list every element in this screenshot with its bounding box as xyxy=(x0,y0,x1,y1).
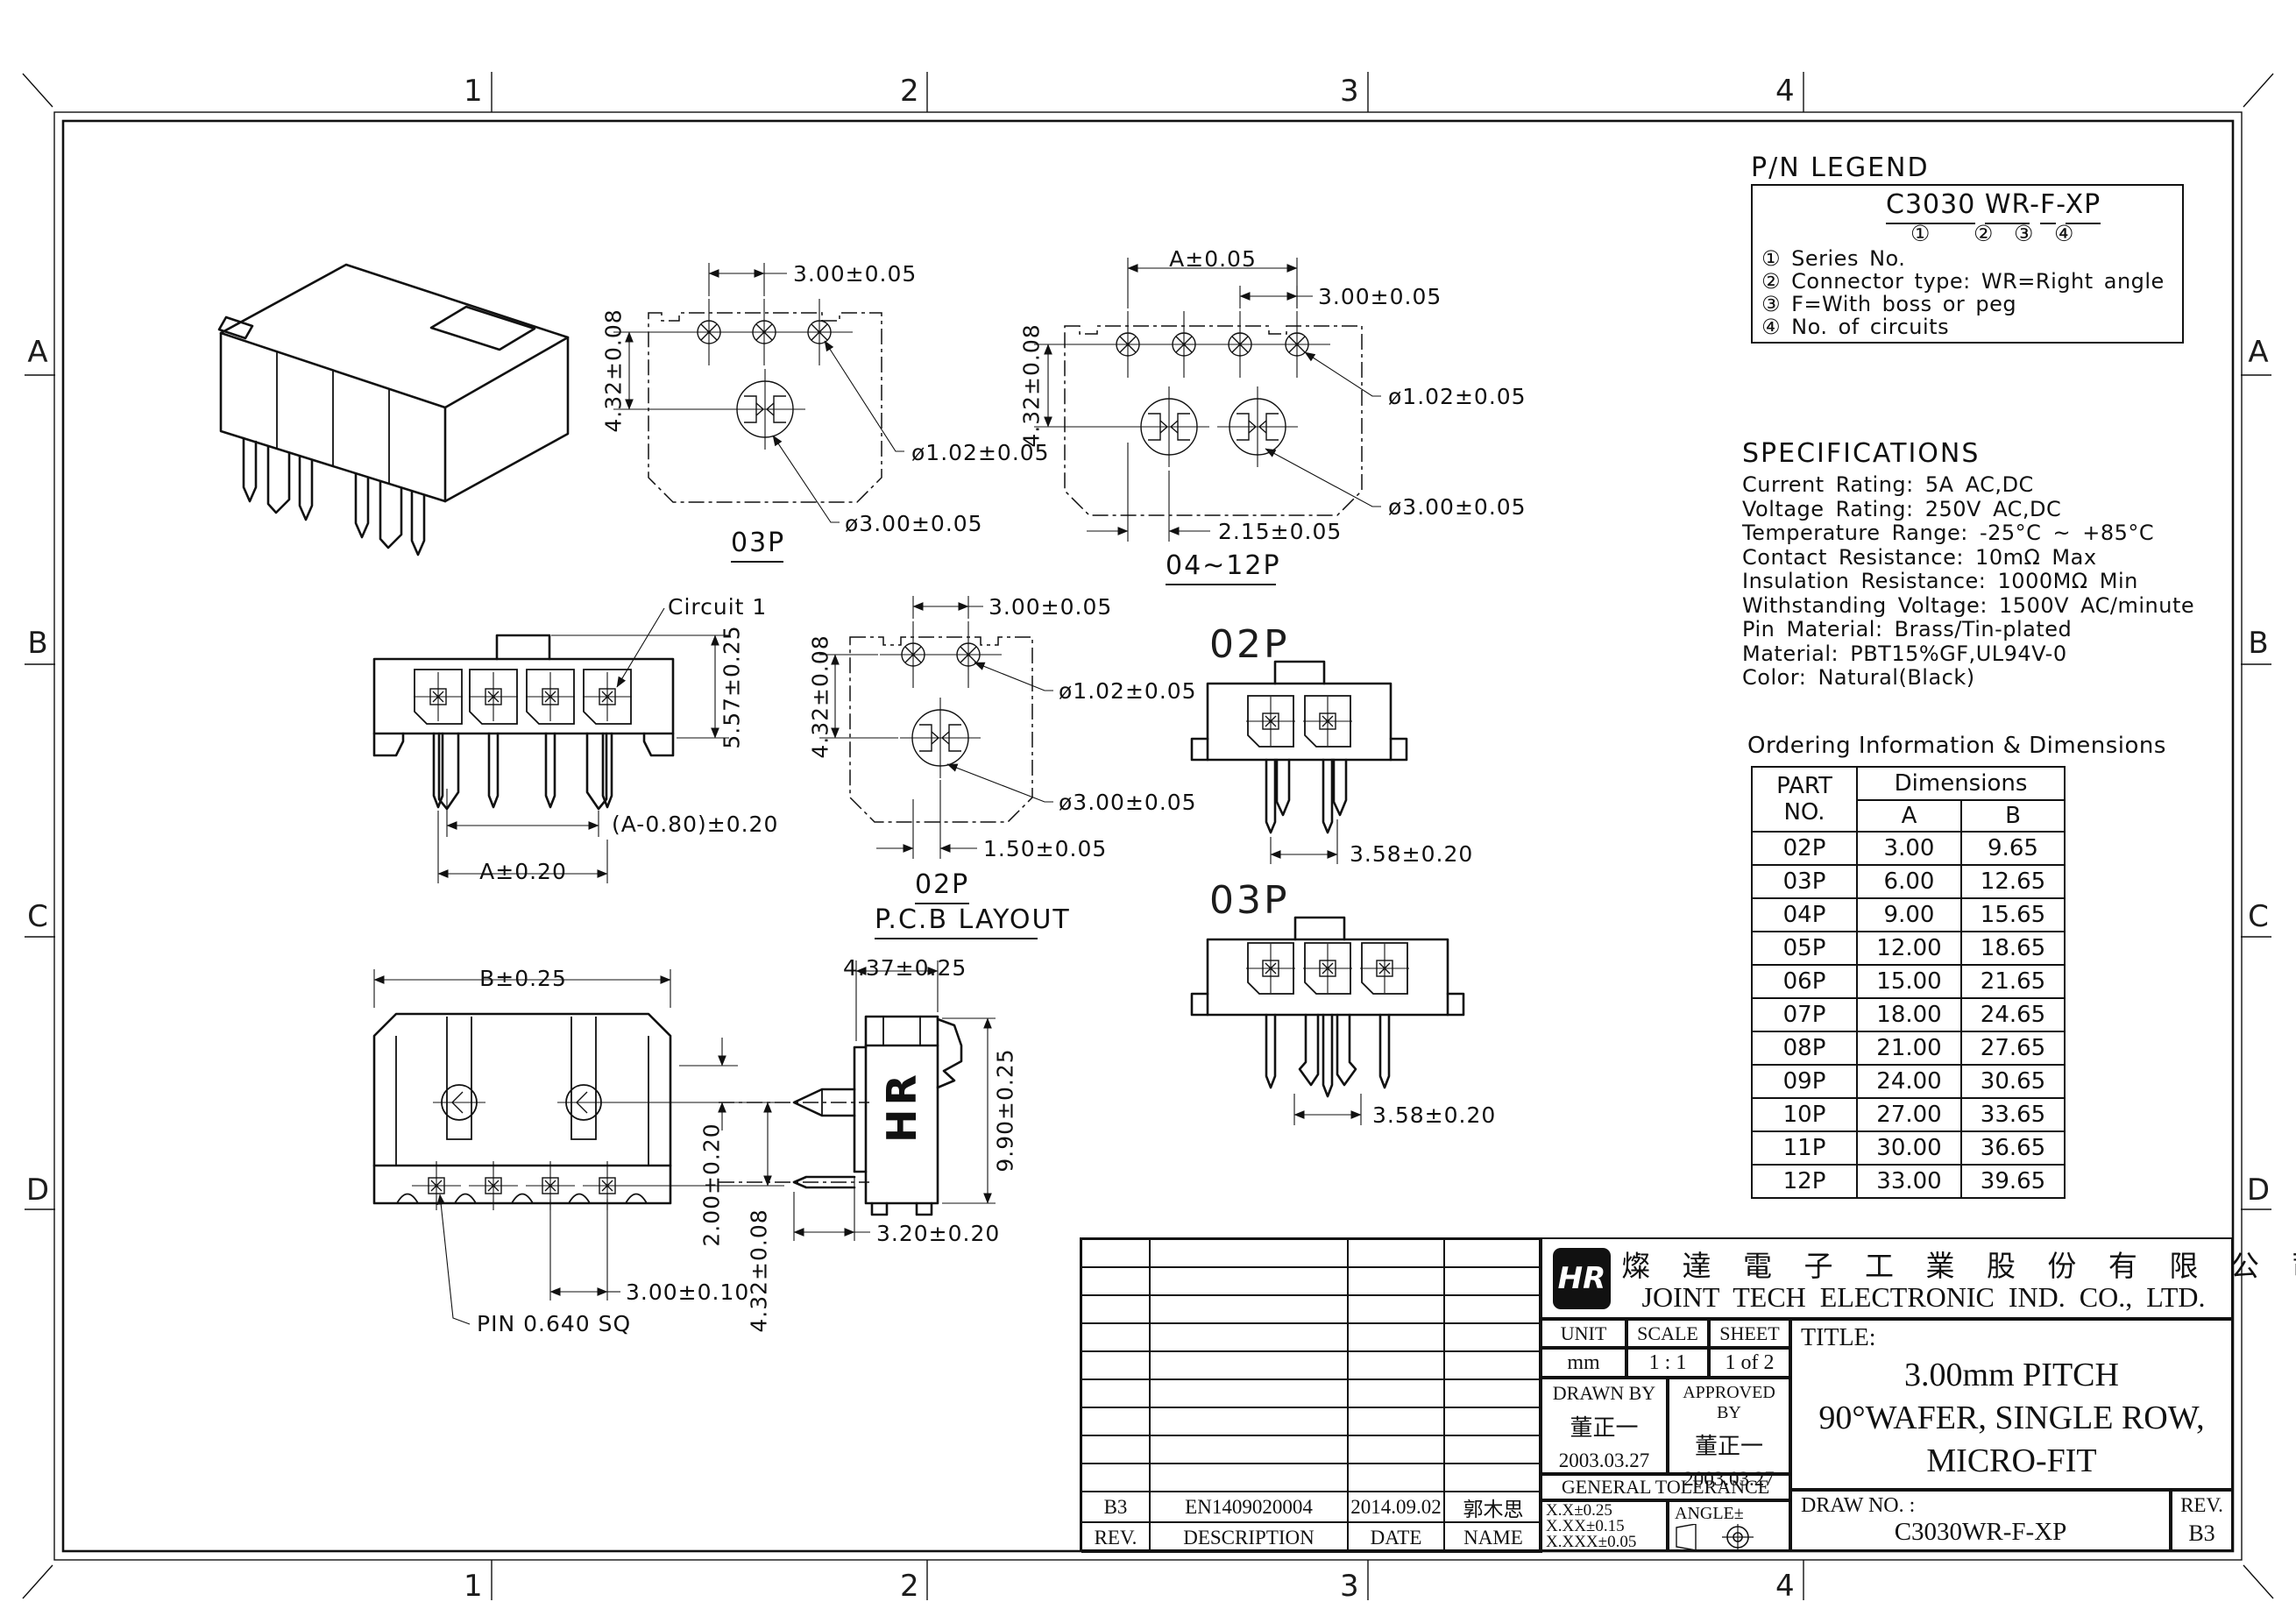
dim-0412-pitch: 3.00±0.05 xyxy=(1318,284,1442,309)
draw-no-box: DRAW NO. : C3030WR-F-XP xyxy=(1790,1490,2171,1551)
dim-03p-pitch: 3.00±0.05 xyxy=(793,261,917,287)
zone-col-4-top: 4 xyxy=(1775,74,1793,109)
approved-by-box: APPROVED BY 董正一 2003.03.27 xyxy=(1668,1378,1790,1474)
draw-no-label: DRAW NO. : xyxy=(1801,1494,2169,1518)
pn-mark-3: ③ xyxy=(2014,221,2033,246)
dim-side-depth: 4.37±0.25 xyxy=(843,955,950,981)
zone-col-2-top: 2 xyxy=(900,74,918,109)
dim-c03p: 3.58±0.20 xyxy=(1372,1102,1496,1128)
dim-side-height: 9.90±0.25 xyxy=(993,1048,1018,1172)
zone-col-2-bottom: 2 xyxy=(900,1569,918,1604)
connector-03p xyxy=(1192,918,1463,1125)
pn-series: C3030 xyxy=(1886,189,1975,224)
zone-col-1-top: 1 xyxy=(464,74,481,109)
approved-by-name: 董正一 xyxy=(1669,1428,1789,1461)
connector-02p xyxy=(1192,662,1407,864)
dim-bottom-pitch: 3.00±0.10 xyxy=(626,1279,749,1305)
dim-front-span: A±0.20 xyxy=(470,859,577,884)
zone-row-a-right: A xyxy=(2243,335,2273,370)
ordering-table: PART NO. Dimensions A B 02P3.009.65 03P6… xyxy=(1751,766,2066,1199)
legend-item: ② Connector type: WR=Right angle xyxy=(1761,270,2165,293)
col-b: B xyxy=(1961,800,2065,832)
drawn-by-name: 董正一 xyxy=(1542,1410,1666,1442)
spec-line: Contact Resistance: 10mΩ Max xyxy=(1742,546,2194,571)
pn-number: C3030 WR-F-XP xyxy=(1886,189,2101,220)
legend-item: ① Series No. xyxy=(1761,247,2165,270)
dim-03p-row: 4.32±0.08 xyxy=(601,308,627,432)
sheet-value: 1 of 2 xyxy=(1709,1348,1790,1378)
zone-row-d-left: D xyxy=(23,1173,53,1208)
dim-02p-hole: ø3.00±0.05 xyxy=(1059,790,1197,815)
approved-by-label: APPROVED BY xyxy=(1669,1383,1789,1423)
drawing-sheet: 1 2 3 4 1 2 3 4 A B C D A B C D 3.00±0.0… xyxy=(0,0,2296,1623)
specs-title: SPECIFICATIONS xyxy=(1742,438,1980,469)
dim-0412-hole: ø3.00±0.05 xyxy=(1388,494,1527,520)
zone-row-a-left: A xyxy=(23,335,53,370)
revision-table: B3 EN1409020004 2014.09.02 郭木思 REV. DESC… xyxy=(1080,1237,1541,1551)
table-row: 02P3.009.65 xyxy=(1752,832,2065,865)
table-row: 12P33.0039.65 xyxy=(1752,1165,2065,1198)
rev-label: REV. xyxy=(2172,1494,2231,1517)
table-row: 06P15.0021.65 xyxy=(1752,965,2065,998)
table-row: 07P18.0024.65 xyxy=(1752,998,2065,1031)
dim-c02p: 3.58±0.20 xyxy=(1350,841,1473,867)
callout-circuit-1: Circuit 1 xyxy=(668,594,767,620)
company-name-cjk: 燦 達 電 子 工 業 股 份 有 限 公 司 xyxy=(1621,1243,2226,1285)
label-02p-footprint: 02P xyxy=(915,869,969,904)
rev-header-date: DATE xyxy=(1348,1522,1444,1553)
table-row: 09P24.0030.65 xyxy=(1752,1065,2065,1098)
label-connector-03p: 03P xyxy=(1209,878,1290,923)
angle-tolerance-box: ANGLE± xyxy=(1668,1500,1790,1551)
col-dimensions: Dimensions xyxy=(1857,767,2065,800)
projection-symbol-icon xyxy=(1669,1524,1785,1550)
spec-line: Withstanding Voltage: 1500V AC/minute xyxy=(1742,594,2194,619)
spec-line: Insulation Resistance: 1000MΩ Min xyxy=(1742,570,2194,594)
pn-mark-1: ① xyxy=(1910,221,1930,246)
spec-line: Voltage Rating: 250V AC,DC xyxy=(1742,498,2194,522)
table-row: 04P9.0015.65 xyxy=(1752,898,2065,932)
drawing-title: 3.00mm PITCH 90°WAFER, SINGLE ROW, MICRO… xyxy=(1792,1354,2231,1483)
spec-line: Color: Natural(Black) xyxy=(1742,666,2194,691)
rev-header-description: DESCRIPTION xyxy=(1150,1522,1348,1553)
rev-entry-date: 2014.09.02 xyxy=(1348,1492,1444,1522)
unit-label: UNIT xyxy=(1541,1319,1626,1348)
dim-front-height: 5.57±0.25 xyxy=(719,625,745,748)
spec-line: Material: PBT15%GF,UL94V-0 xyxy=(1742,642,2194,667)
dim-02p-offset: 1.50±0.05 xyxy=(983,836,1107,861)
company-logo: HR xyxy=(1553,1248,1611,1309)
dim-02p-row: 4.32±0.08 xyxy=(808,634,833,758)
label-connector-02p: 02P xyxy=(1209,622,1290,667)
zone-row-c-right: C xyxy=(2243,899,2273,934)
general-tolerance-label: GENERAL TOLERANCE xyxy=(1541,1474,1790,1500)
zone-row-b-left: B xyxy=(23,626,53,661)
rev-header-rev: REV. xyxy=(1081,1522,1150,1553)
rev-entry-description: EN1409020004 xyxy=(1150,1492,1348,1522)
angle-label: ANGLE± xyxy=(1675,1504,1789,1524)
company-name-en: JOINT TECH ELECTRONIC IND. CO., LTD. xyxy=(1621,1281,2226,1314)
col-a: A xyxy=(1857,800,1961,832)
table-row: 05P12.0018.65 xyxy=(1752,932,2065,965)
draw-no-value: C3030WR-F-XP xyxy=(1792,1518,2169,1547)
dim-bottom-rows: 4.32±0.08 xyxy=(747,1208,772,1332)
rev-entry-name: 郭木思 xyxy=(1444,1492,1542,1522)
side-view xyxy=(719,960,996,1241)
callout-pin-sq: PIN 0.640 SQ xyxy=(477,1311,631,1336)
specs-lines: Current Rating: 5A AC,DC Voltage Rating:… xyxy=(1742,473,2194,691)
pn-legend-items: ① Series No. ② Connector type: WR=Right … xyxy=(1761,247,2165,338)
label-03p-footprint: 03P xyxy=(731,528,783,563)
spec-line: Pin Material: Brass/Tin-plated xyxy=(1742,618,2194,642)
scale-label: SCALE xyxy=(1626,1319,1709,1348)
zone-col-3-top: 3 xyxy=(1340,74,1357,109)
pn-type: WR xyxy=(1985,189,2030,224)
spec-line: Current Rating: 5A AC,DC xyxy=(1742,473,2194,498)
legend-item: ③ F=With boss or peg xyxy=(1761,293,2165,315)
rev-value: B3 xyxy=(2172,1520,2231,1547)
ordering-title: Ordering Information & Dimensions xyxy=(1747,733,2166,759)
scale-value: 1 : 1 xyxy=(1626,1348,1709,1378)
dim-bottom-drop: 2.00±0.20 xyxy=(699,1123,725,1246)
rev-entry-rev: B3 xyxy=(1081,1492,1150,1522)
pn-legend-title: P/N LEGEND xyxy=(1751,152,1930,183)
dim-02p-pitch: 3.00±0.05 xyxy=(989,594,1112,620)
dim-front-peg-span: (A-0.80)±0.20 xyxy=(612,811,778,837)
pn-boss: F xyxy=(2040,189,2056,224)
tolerance-values: X.X±0.25 X.XX±0.15 X.XXX±0.05 xyxy=(1541,1500,1668,1551)
rev-header-name: NAME xyxy=(1444,1522,1542,1553)
title-label: TITLE: xyxy=(1801,1324,2231,1352)
drawn-by-label: DRAWN BY xyxy=(1542,1382,1666,1405)
col-part-no: PART NO. xyxy=(1752,767,1857,832)
dim-bottom-width: B±0.25 xyxy=(470,966,577,991)
table-row: 10P27.0033.65 xyxy=(1752,1098,2065,1131)
dim-03p-hole: ø3.00±0.05 xyxy=(845,511,983,536)
dim-0412-row: 4.32±0.08 xyxy=(1019,323,1045,447)
zone-col-1-bottom: 1 xyxy=(464,1569,481,1604)
pn-mark-2: ② xyxy=(1974,221,1993,246)
pn-circuits: XP xyxy=(2066,189,2101,224)
dim-0412-pad: ø1.02±0.05 xyxy=(1388,384,1527,409)
caption-pcb-layout: P.C.B LAYOUT xyxy=(875,904,1038,939)
zone-row-d-right: D xyxy=(2243,1173,2273,1208)
table-row: 08P21.0027.65 xyxy=(1752,1031,2065,1065)
drawn-by-box: DRAWN BY 董正一 2003.03.27 xyxy=(1541,1378,1668,1474)
isometric-view xyxy=(219,265,568,555)
sheet-label: SHEET xyxy=(1709,1319,1790,1348)
pn-mark-4: ④ xyxy=(2054,221,2073,246)
spec-line: Temperature Range: -25°C ~ +85°C xyxy=(1742,521,2194,546)
front-view xyxy=(374,608,729,883)
label-0412-footprint: 04~12P xyxy=(1166,550,1276,585)
dim-side-tail: 3.20±0.20 xyxy=(876,1221,1000,1246)
rev-box: REV. B3 xyxy=(2171,1490,2233,1551)
dim-02p-pad: ø1.02±0.05 xyxy=(1059,678,1197,704)
dim-0412-offset: 2.15±0.05 xyxy=(1218,519,1342,544)
zone-row-c-left: C xyxy=(23,899,53,934)
pcb-layout-02p xyxy=(819,596,1053,859)
title-box: TITLE: 3.00mm PITCH 90°WAFER, SINGLE ROW… xyxy=(1790,1319,2233,1490)
legend-item: ④ No. of circuits xyxy=(1761,315,2165,338)
zone-row-b-right: B xyxy=(2243,626,2273,661)
hr-mold-logo: HR xyxy=(878,1071,925,1143)
table-row: 11P30.0036.65 xyxy=(1752,1131,2065,1165)
pcb-layout-03p xyxy=(613,263,904,522)
zone-col-4-bottom: 4 xyxy=(1775,1569,1793,1604)
table-row: 03P6.0012.65 xyxy=(1752,865,2065,898)
dim-0412-a: A±0.05 xyxy=(1164,246,1262,272)
zone-col-3-bottom: 3 xyxy=(1340,1569,1357,1604)
drawn-by-date: 2003.03.27 xyxy=(1542,1449,1666,1472)
unit-value: mm xyxy=(1541,1348,1626,1378)
